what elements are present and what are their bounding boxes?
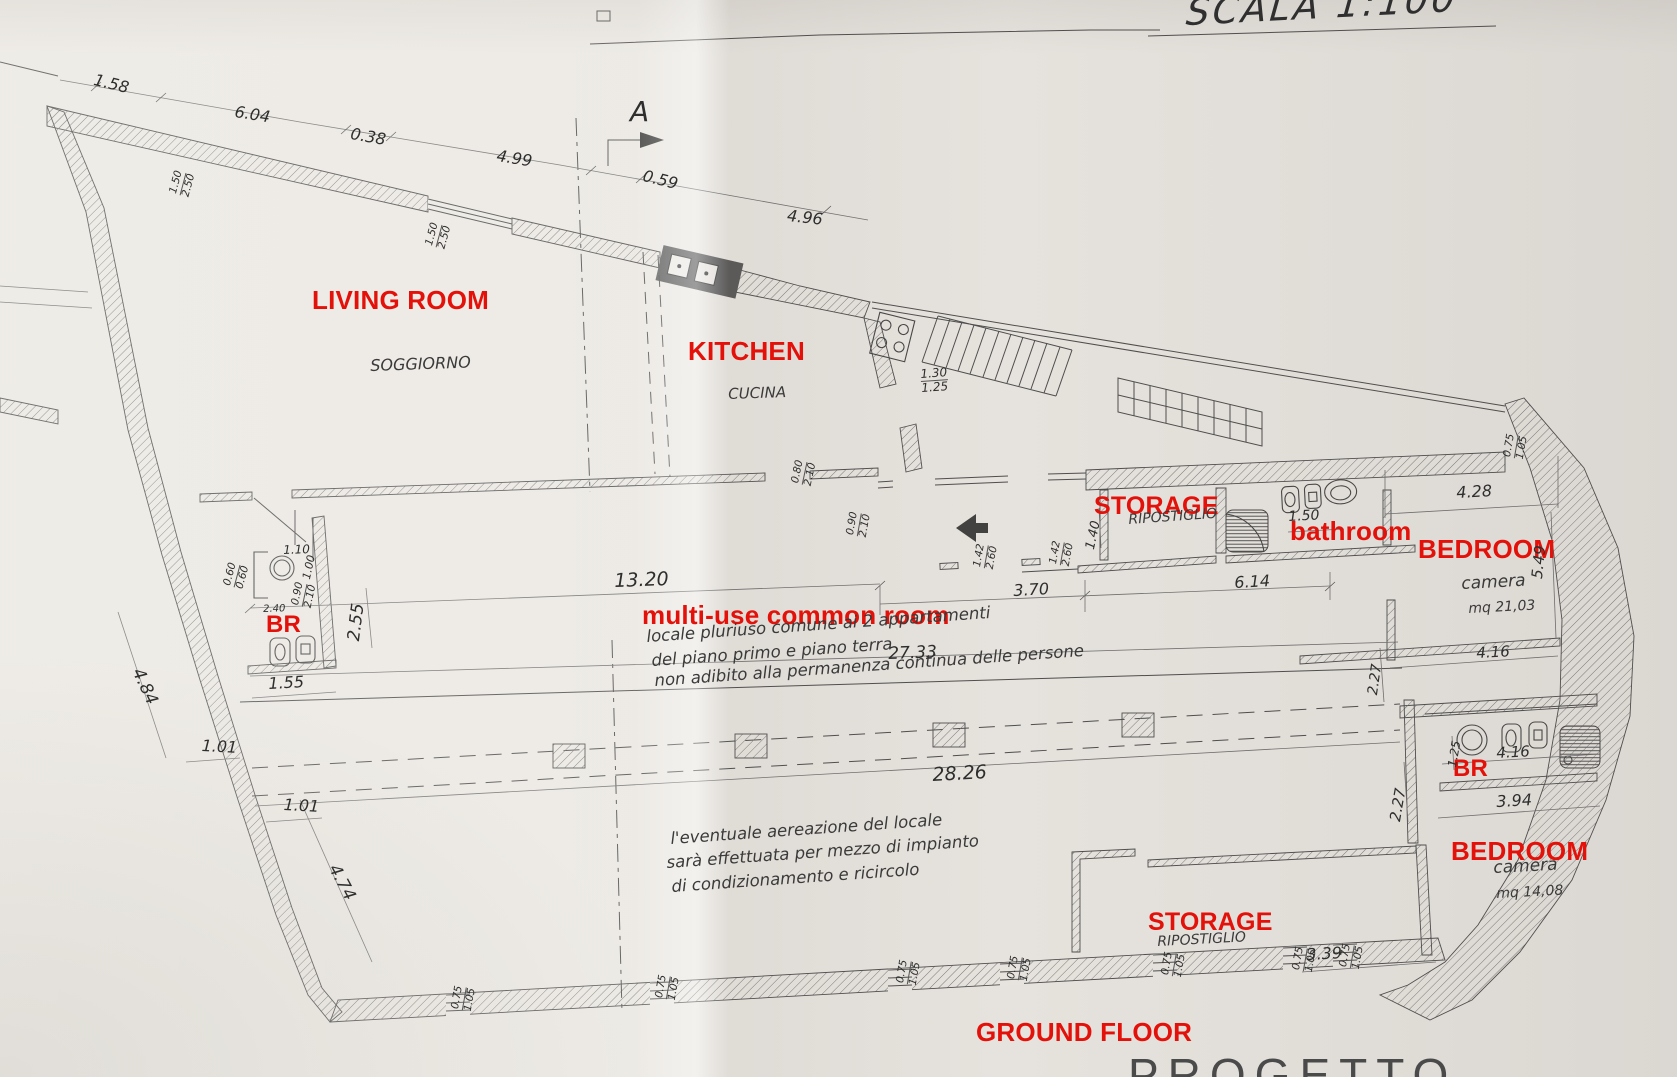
north-mark xyxy=(597,11,610,21)
dim-4-16-b: 4.16 xyxy=(1496,744,1530,761)
dim-window-s3: 0.751.05 xyxy=(895,959,923,986)
dim-window-s7: 0.751.05 xyxy=(1338,943,1366,970)
bidet-icon xyxy=(296,636,315,663)
scanned-floor-plan: SCALA 1:100 A LIVING ROOM KITCHEN STORAG… xyxy=(0,0,1677,1077)
staircase-lower xyxy=(1118,378,1262,446)
dim-window-s2: 0.751.05 xyxy=(654,974,682,1001)
west-wall xyxy=(47,106,342,1022)
kitchen-east-wall xyxy=(864,318,896,388)
dim-27-33: 27.33 xyxy=(888,644,937,663)
kitchen-south-stub xyxy=(900,424,922,472)
dim-13-20: 13.20 xyxy=(614,570,669,591)
dim-door-080: 0.802.10 xyxy=(790,459,818,487)
dim-28-26: 28.26 xyxy=(932,763,987,785)
dim-4-28: 4.28 xyxy=(1456,483,1492,501)
dim-window-s4: 0.751.05 xyxy=(1006,955,1034,982)
label-living-room: LIVING ROOM xyxy=(312,287,489,313)
dim-door-090-a: 0.902.10 xyxy=(845,511,873,538)
label-camera-bottom: camera xyxy=(1493,857,1558,877)
common-room-top-wall xyxy=(200,468,878,502)
dim-door-1: 1.422.60 xyxy=(972,543,1000,570)
toilet-icon xyxy=(270,638,290,666)
label-kitchen: KITCHEN xyxy=(688,338,805,364)
label-cucina: CUCINA xyxy=(728,385,786,402)
label-camera-top: camera xyxy=(1461,573,1526,593)
dim-2-27-a: 2.27 xyxy=(1366,663,1384,696)
shower-top xyxy=(1226,510,1268,552)
dim-1-01-a: 1.01 xyxy=(201,738,237,756)
dim-window-s5: 0.751.05 xyxy=(1160,951,1188,978)
label-br-left: BR xyxy=(266,613,301,637)
corridor xyxy=(240,668,1402,796)
dim-window-ne: 0.751.05 xyxy=(1502,433,1530,460)
pillar xyxy=(933,723,965,747)
section-letter: A xyxy=(630,98,649,126)
sink-icon xyxy=(1324,479,1357,505)
label-soggiorno: SOGGIORNO xyxy=(370,354,471,373)
dim-3-94: 3.94 xyxy=(1496,792,1532,810)
dim-1-50: 1.50 xyxy=(1288,508,1320,524)
dim-2-40: 2.40 xyxy=(263,604,286,615)
dim-4-16-a: 4.16 xyxy=(1476,644,1510,661)
label-mq-top: mq 21,03 xyxy=(1468,598,1536,615)
shower-icon xyxy=(1560,726,1600,768)
dim-2-55: 2.55 xyxy=(346,602,367,642)
right-rooms-north-wall xyxy=(1086,452,1505,490)
label-ground-floor: GROUND FLOOR xyxy=(976,1019,1192,1045)
section-marker-a xyxy=(608,132,664,166)
label-mq-bottom: mq 14,08 xyxy=(1496,883,1564,900)
sheet-title-partial: PROGETTO xyxy=(1128,1052,1457,1077)
south-wall xyxy=(330,938,1445,1022)
terrace-parapet xyxy=(872,302,1505,412)
dim-3-70: 3.70 xyxy=(1013,581,1049,599)
door-swing xyxy=(254,498,306,542)
pillar xyxy=(1122,713,1154,737)
bidet-icon xyxy=(1529,722,1547,748)
dim-1-01-b: 1.01 xyxy=(283,797,319,815)
west-wall-stub xyxy=(0,398,58,424)
dim-5-49: 5.49 xyxy=(1530,545,1548,580)
dim-kitchen-pass: 1.301.25 xyxy=(920,366,949,395)
dim-4-96: 4.96 xyxy=(786,208,823,228)
dim-door-090-b: 0.902.10 xyxy=(290,581,318,609)
pillar xyxy=(553,744,585,768)
dim-window-s6: 0.751.05 xyxy=(1291,946,1319,973)
dim-6-14: 6.14 xyxy=(1234,573,1270,591)
kitchen-sink xyxy=(655,245,743,299)
dim-window-s1: 0.751.05 xyxy=(450,985,478,1012)
dim-door-2: 1.422.60 xyxy=(1048,540,1076,567)
pillar xyxy=(735,734,767,758)
bidet-icon xyxy=(1304,484,1321,509)
dim-1-55: 1.55 xyxy=(268,674,304,692)
entrance-arrow xyxy=(956,514,988,542)
